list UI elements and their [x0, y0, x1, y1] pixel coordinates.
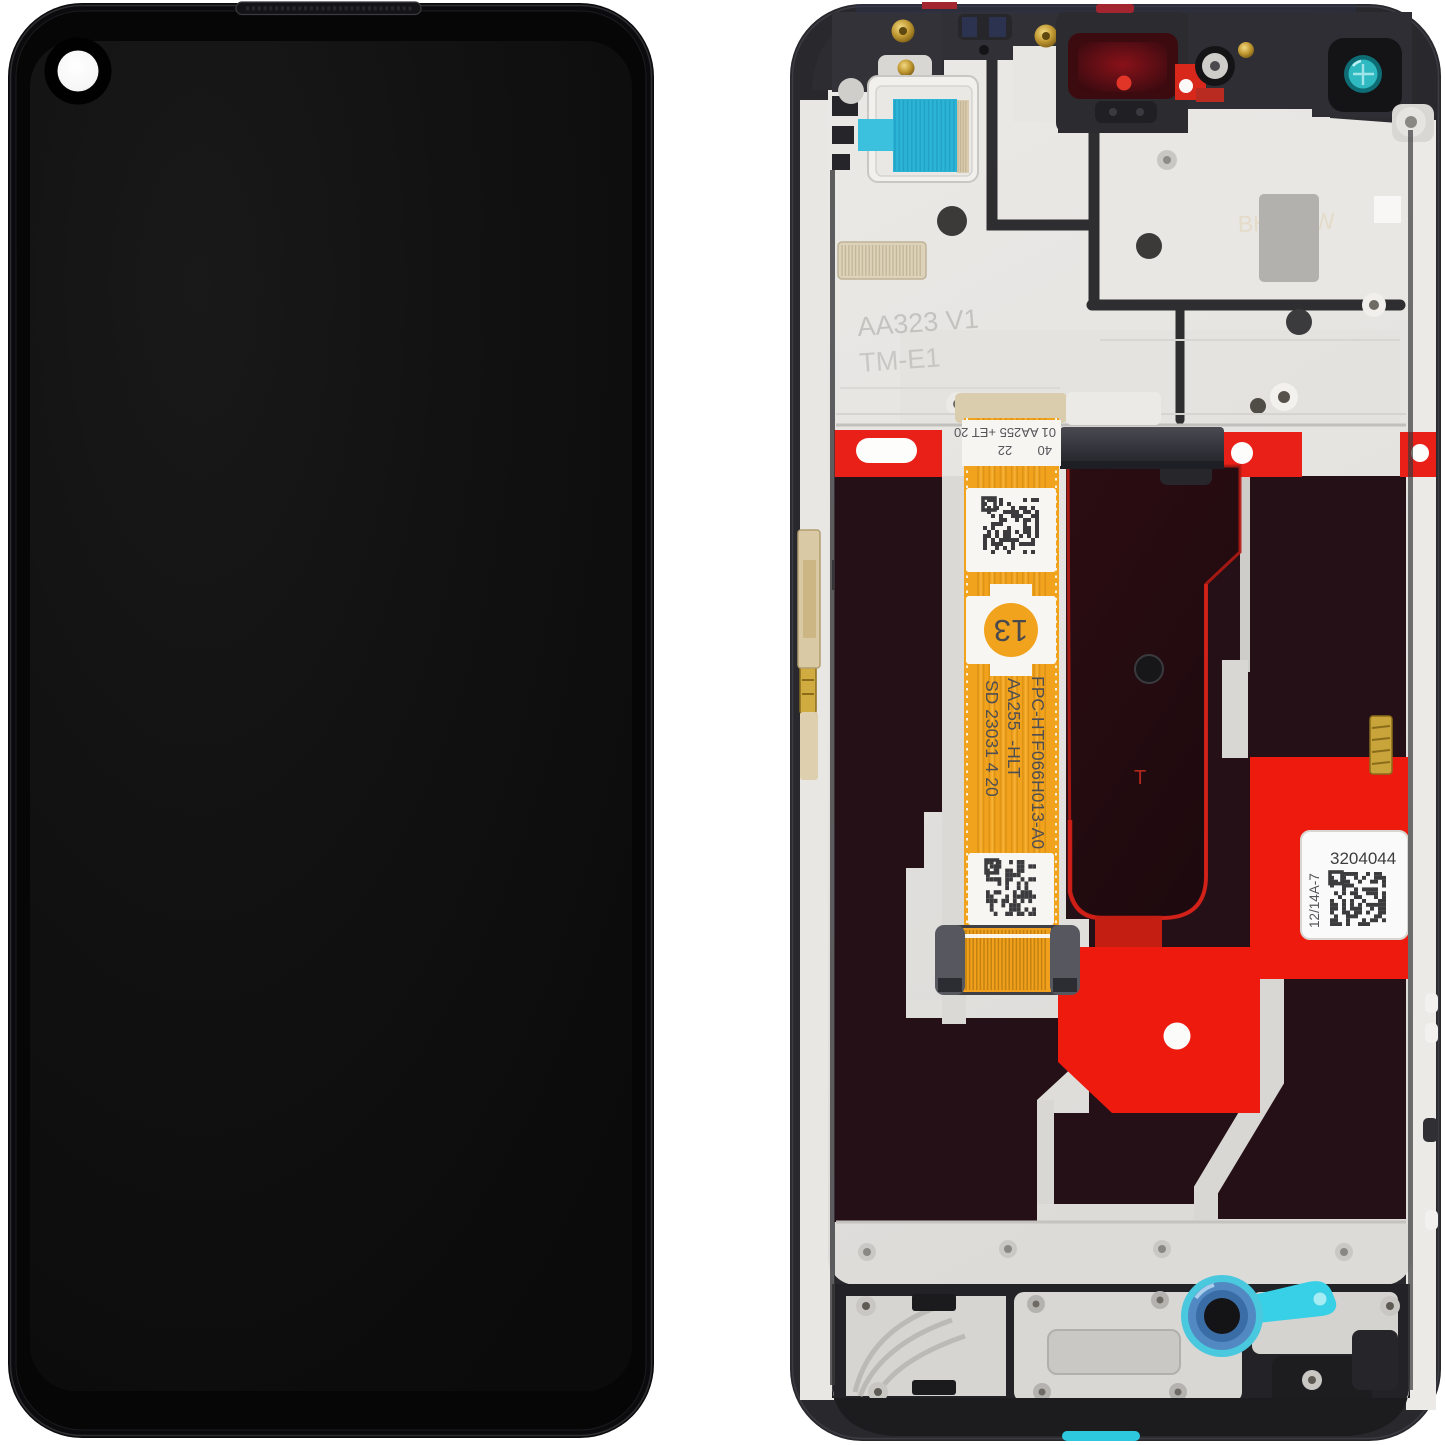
svg-text:3204044: 3204044: [1330, 849, 1396, 868]
svg-text:13: 13: [994, 613, 1028, 648]
svg-text:T: T: [1134, 767, 1146, 789]
svg-text:01 AA255 +ET 20: 01 AA255 +ET 20: [954, 425, 1056, 440]
svg-text:TM-E1: TM-E1: [858, 342, 941, 378]
svg-text:SD 23031 4 20: SD 23031 4 20: [982, 680, 1002, 797]
svg-text:12/14A-7: 12/14A-7: [1307, 873, 1322, 928]
svg-text:40 22: 40 22: [998, 443, 1052, 458]
svg-text:AA255 -HLT: AA255 -HLT: [1004, 678, 1024, 778]
svg-text:FPC-HTF066H013-A0: FPC-HTF066H013-A0: [1028, 676, 1048, 849]
